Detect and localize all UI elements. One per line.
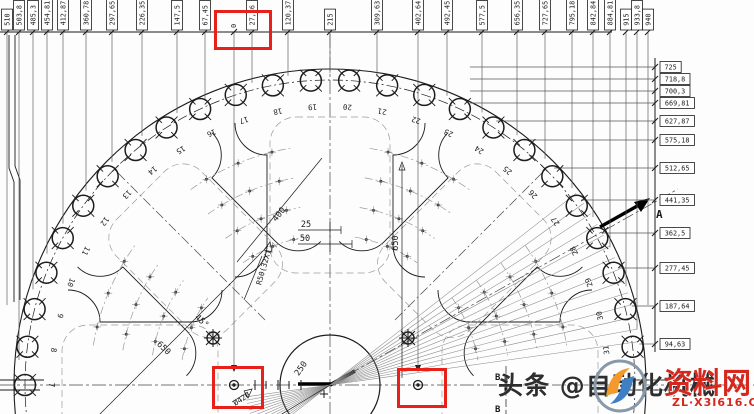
hole-tick [30, 374, 36, 380]
hole-tick [413, 84, 419, 90]
grid-point-cross [218, 201, 226, 209]
rim-hole-number: 11 [80, 245, 92, 257]
top-dimension-value: 940 [644, 13, 652, 25]
hole-tick [614, 314, 620, 320]
right-dimension-ladder: 725718,8700,3669,81627,87575,18512,65441… [470, 58, 694, 352]
grid-point-cross [492, 312, 500, 320]
top-dimension-value: 215 [326, 13, 334, 25]
grid-arc [525, 246, 566, 346]
grid-point-cross [370, 206, 378, 214]
dim-650-vertical: 650 [391, 235, 401, 250]
rim-hole-number: 13 [121, 188, 134, 201]
channel-edge [78, 244, 210, 376]
rim-hole-number: 7 [47, 383, 56, 388]
top-dimension-value: 503,8 [15, 5, 23, 25]
grid-arc [452, 298, 478, 360]
hole-tick [354, 85, 360, 91]
hole-tick [189, 114, 195, 120]
rim-hole-number: 26 [526, 188, 539, 201]
grid-arc [360, 207, 435, 238]
fan-line [330, 246, 609, 385]
rim-bolt-holes: 7891011121314151617181920212223242526272… [14, 70, 644, 396]
hole-tick [32, 336, 38, 342]
rim-hole-number: 29 [583, 277, 595, 289]
grid-arc [477, 280, 508, 355]
hole-tick [88, 210, 94, 216]
dim-250: 250 [293, 360, 310, 378]
hole-tick [449, 114, 455, 120]
target-cross-left [204, 329, 222, 347]
rim-hole-number: 21 [377, 106, 388, 117]
hole-tick [240, 100, 246, 106]
hole-tick [39, 314, 45, 320]
hole-tick [156, 132, 162, 138]
hole-tick [464, 114, 470, 120]
top-dimension-value: 933,8 [633, 5, 641, 25]
highlight-box-bottom-left [212, 366, 264, 409]
watermark-url: ZL·X3I616.COM [672, 396, 754, 409]
petal-outline [62, 325, 218, 414]
hole-tick [622, 351, 628, 357]
grid-point-cross [450, 175, 458, 183]
hole-tick [300, 85, 306, 91]
hole-tick [14, 374, 20, 380]
hole-tick [603, 277, 609, 283]
top-dimension-value: 795,18 [568, 1, 576, 26]
grid-point-cross [233, 227, 241, 235]
fan-line [330, 203, 584, 385]
grid-arc [365, 178, 452, 214]
rim-hole-number: 18 [272, 106, 283, 117]
right-dimension-value: 575,18 [665, 136, 690, 144]
rim-hole-number: 9 [55, 312, 65, 319]
grid-point-cross [202, 175, 210, 183]
hole-tick [603, 262, 609, 268]
section-b-label-bottom: B [495, 405, 501, 414]
grid-point-cross [197, 304, 205, 312]
top-dimension-value: 884,81 [606, 1, 614, 26]
hole-tick [35, 277, 41, 283]
hole-tick [51, 277, 57, 283]
right-dimension-value: 187,64 [665, 302, 690, 310]
rim-hole-number: 30 [594, 310, 605, 321]
top-dimension-value: 226,35 [138, 1, 146, 26]
rim-hole-number: 17 [238, 114, 249, 125]
hole-tick [240, 84, 246, 90]
hole-tick [529, 155, 535, 161]
hole-tick [449, 98, 455, 104]
grid-point-cross [93, 323, 101, 331]
section-a-label: A [656, 208, 663, 221]
grid-arc [243, 237, 305, 263]
right-dimension-value: 512,65 [665, 164, 690, 172]
top-dimension-value: 309,63 [373, 1, 381, 26]
rim-hole-number: 20 [342, 102, 352, 112]
hole-tick [32, 351, 38, 357]
top-dimension-value: 577,5 [478, 5, 486, 25]
hole-tick [557, 181, 563, 187]
grid-point-cross [268, 148, 276, 156]
grid-arc [355, 237, 417, 263]
rim-hole-number: 10 [65, 277, 77, 289]
hole-tick [24, 314, 30, 320]
right-dimension-value: 669,81 [665, 99, 690, 107]
dim-50: 50 [300, 234, 310, 244]
hole-tick [541, 181, 547, 187]
top-dimension-value: 842,84 [589, 1, 597, 26]
grid-point-cross [122, 330, 130, 338]
grid-point-cross [384, 148, 392, 156]
hole-tick [630, 314, 636, 320]
right-dimension-value: 362,5 [665, 229, 685, 237]
top-dimension-value: 492,45 [443, 1, 451, 26]
rim-hole-number: 22 [410, 114, 421, 125]
hole-tick [277, 90, 283, 96]
grid-point-cross [406, 187, 414, 195]
hole-tick [112, 181, 118, 187]
hole-tick [51, 262, 57, 268]
rim-hole-number: 12 [98, 215, 111, 228]
right-dimension-value: 94,63 [665, 340, 685, 348]
top-dimension-value: 120,37 [284, 1, 292, 26]
grid-point-cross [234, 159, 242, 167]
grid-point-cross [146, 273, 154, 281]
hole-tick [392, 90, 398, 96]
grid-point-cross [257, 215, 265, 223]
top-dimension-value: 485,3 [29, 5, 37, 25]
watermark-logo-icon [592, 358, 648, 414]
right-dimension-value: 627,87 [665, 117, 690, 125]
grid-point-cross [362, 235, 370, 243]
top-dimension-ladder: 510503,8485,3454,81412,87360,78297,65226… [0, 0, 654, 369]
hole-tick [482, 117, 488, 123]
top-dimension-value: 454,81 [43, 1, 51, 26]
top-dimension-value: 402,64 [414, 1, 422, 26]
grid-arc [370, 148, 470, 189]
grid-point-cross [275, 177, 283, 185]
hole-tick [315, 70, 321, 76]
hole-tick [376, 74, 382, 80]
section-a-arrow [600, 198, 650, 227]
top-dimension-value: 656,35 [513, 1, 521, 26]
right-dimension-value: 718,8 [665, 75, 685, 83]
grid-point-cross [249, 252, 257, 260]
hole-tick [125, 155, 131, 161]
top-dimension-value: 412,87 [59, 1, 67, 26]
rim-hole-number: 14 [146, 164, 159, 177]
hole-tick [482, 132, 488, 138]
grid-arc [225, 207, 300, 238]
hole-tick [140, 155, 146, 161]
hole-tick [16, 351, 22, 357]
channel-edge [339, 133, 471, 265]
top-dimension-value: 360,78 [82, 1, 90, 26]
hole-tick [171, 117, 177, 123]
radial-45 [395, 170, 545, 320]
rim-hole-number: 15 [175, 144, 187, 156]
grid-point-cross [377, 177, 385, 185]
logo-ring [595, 361, 645, 411]
grid-arc [93, 246, 134, 346]
hole-tick [376, 90, 382, 96]
hole-tick [338, 85, 344, 91]
rim-hole-number: 28 [568, 244, 580, 257]
sheet-edge [9, 35, 20, 302]
right-dimension-value: 725 [664, 63, 676, 71]
top-dimension-value: 727,65 [541, 1, 549, 26]
right-dimension-value: 441,35 [665, 196, 690, 204]
hole-tick [39, 298, 45, 304]
cad-drawing-canvas: 400 25 50 R50(32X) 650 650 45° 250 Ø420 … [0, 0, 754, 414]
grid-point-cross [472, 345, 480, 353]
grid-point-cross [246, 187, 254, 195]
grid-point-cross [419, 227, 427, 235]
hole-tick [637, 351, 643, 357]
grid-point-cross [403, 252, 411, 260]
hole-tick [622, 336, 628, 342]
hole-tick [205, 114, 211, 120]
grid-point-cross [290, 235, 298, 243]
top-dimension-value: 67,45 [201, 5, 209, 25]
hole-tick [614, 298, 620, 304]
rim-hole-number: 8 [49, 347, 59, 353]
hole-tick [513, 155, 519, 161]
hole-tick [14, 390, 20, 396]
dim-25: 25 [301, 220, 311, 230]
rim-hole-number: 25 [501, 164, 514, 177]
grid-point-cross [180, 345, 188, 353]
grid-point-cross [548, 289, 556, 297]
rim-hole-number: 19 [308, 102, 318, 112]
top-dimension-value: 147,5 [173, 5, 181, 25]
hole-tick [429, 100, 435, 106]
hole-tick [97, 181, 103, 187]
rim-hole-number: 24 [473, 143, 486, 156]
hole-tick [586, 243, 592, 249]
hole-tick [315, 85, 321, 91]
top-dimension-value: 297,65 [108, 1, 116, 26]
grid-point-cross [418, 159, 426, 167]
highlight-box-bottom-right [397, 368, 447, 408]
grid-arc [123, 263, 159, 350]
hole-tick [225, 100, 231, 106]
hole-tick [262, 90, 268, 96]
grid-point-cross [559, 323, 567, 331]
grid-arc [191, 148, 291, 189]
dim-400: 400 [271, 206, 288, 224]
rim-hole-number: 27 [549, 215, 562, 228]
right-dimension-value: 700,3 [665, 87, 685, 95]
grid-point-cross [172, 288, 180, 296]
rim-hole-number: 31 [601, 345, 611, 355]
highlight-box-top [214, 10, 272, 50]
grid-point-cross [120, 257, 128, 265]
grid-point-cross [434, 201, 442, 209]
hole-tick [338, 70, 344, 76]
grid-arc [501, 263, 537, 350]
channel-edge [189, 133, 321, 265]
channel-edge [393, 123, 425, 277]
grid-point-cross [160, 312, 168, 320]
top-dimension-value: 915 [622, 13, 630, 25]
target-points [204, 329, 417, 347]
hole-tick [413, 100, 419, 106]
hole-tick [205, 98, 211, 104]
hole-tick [498, 132, 504, 138]
hole-tick [171, 132, 177, 138]
right-dimension-value: 277,45 [665, 264, 690, 272]
fan-line [330, 193, 576, 385]
engineering-drawing: 400 25 50 R50(32X) 650 650 45° 250 Ø420 … [0, 0, 754, 414]
grid-point-cross [104, 289, 112, 297]
dim-650-diagonal: 650 [154, 340, 172, 358]
hole-tick [30, 390, 36, 396]
radial-135 [115, 170, 265, 320]
grid-point-cross [132, 301, 140, 309]
hole-tick [277, 74, 283, 80]
hole-tick [566, 210, 572, 216]
hole-tick [67, 243, 73, 249]
petal-channel [62, 290, 222, 414]
top-dimension-value: 510 [3, 13, 11, 25]
